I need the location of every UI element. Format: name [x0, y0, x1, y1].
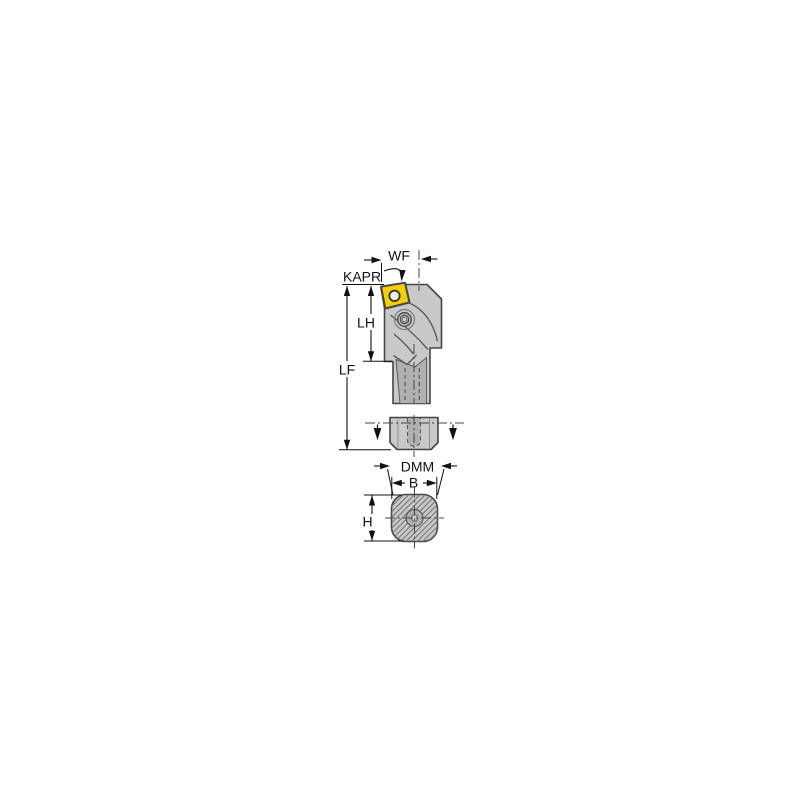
- dmm-arrow-left-pointing: [441, 463, 451, 469]
- lh-arrow-down: [368, 351, 374, 361]
- catalog-dimension-drawing: WF KAPR LH LF DMM B H: [0, 0, 800, 800]
- insert-hole: [389, 291, 399, 301]
- kapr-arc: [384, 269, 402, 278]
- lf-arrow-down: [344, 440, 350, 450]
- b-arrow-left-pointing: [392, 480, 402, 486]
- wf-arrow-right-pointing: [372, 257, 382, 263]
- label-wf: WF: [388, 248, 410, 264]
- kapr-arrowhead: [399, 270, 405, 282]
- lf-arrow-up: [344, 286, 350, 296]
- label-dmm: DMM: [401, 459, 434, 475]
- b-arrow-right-pointing: [427, 480, 437, 486]
- section-arrow-left: [374, 429, 380, 439]
- dim-kapr: [384, 269, 406, 282]
- label-lf: LF: [339, 362, 355, 378]
- lh-arrow-up: [368, 286, 374, 296]
- section-arrow-right: [450, 429, 456, 439]
- dmm-arrow-right-pointing: [380, 463, 390, 469]
- dmm-extension-right: [438, 469, 445, 495]
- tool-diagram-svg: WF KAPR LH LF DMM B H: [0, 0, 800, 800]
- screw-center: [403, 318, 407, 322]
- label-h: H: [362, 514, 372, 530]
- h-arrow-up: [369, 496, 375, 506]
- wf-arrow-left-pointing: [421, 256, 431, 262]
- clamp-screw: [395, 310, 415, 330]
- label-kapr: KAPR: [343, 269, 381, 285]
- label-b: B: [409, 475, 418, 491]
- label-lh: LH: [357, 315, 375, 331]
- h-arrow-down: [369, 531, 375, 541]
